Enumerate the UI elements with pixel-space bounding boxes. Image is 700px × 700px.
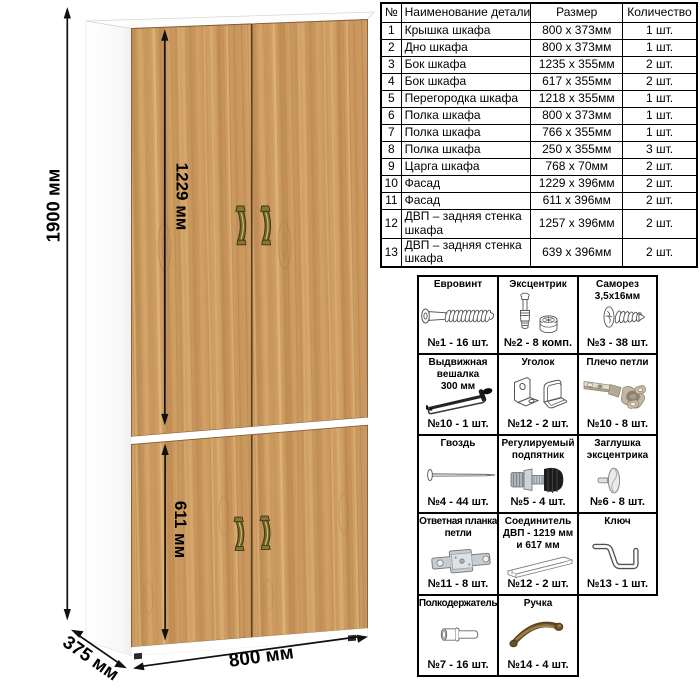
svg-text:1229 мм: 1229 мм <box>173 163 192 231</box>
svg-text:611 мм: 611 мм <box>171 501 190 558</box>
svg-text:1900 мм: 1900 мм <box>43 169 64 243</box>
